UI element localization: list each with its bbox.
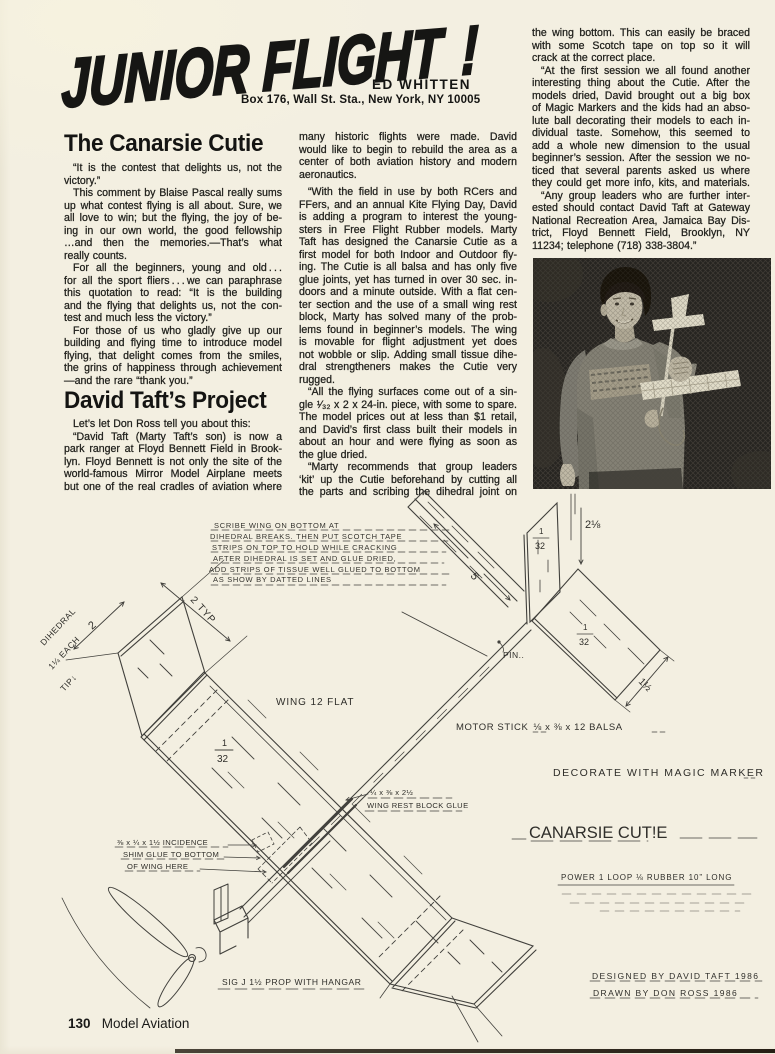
svg-text:AS SHOW BY DATTED LINES: AS SHOW BY DATTED LINES xyxy=(213,575,332,584)
svg-text:2⅛: 2⅛ xyxy=(585,519,601,531)
svg-text:1: 1 xyxy=(583,623,588,632)
svg-text:DESIGNED BY DAVID TAFT 198: DESIGNED BY DAVID TAFT 1986 xyxy=(592,971,759,981)
svg-text:SHIM GLUE TO BOTTOM: SHIM GLUE TO BOTTOM xyxy=(123,850,219,859)
svg-text:DECORATE WITH MAGIC MARKER: DECORATE WITH MAGIC MARKER xyxy=(553,767,764,779)
svg-text:32: 32 xyxy=(579,637,589,647)
svg-text:OF WING HERE: OF WING HERE xyxy=(127,862,188,871)
svg-text:MOTOR STICK ⅛ x ⅜ x 12 BALSA: MOTOR STICK ⅛ x ⅜ x 12 BALSA xyxy=(456,722,623,733)
svg-text:WING 12 FLAT: WING 12 FLAT xyxy=(276,697,354,708)
svg-text:SCRIBE WING ON BOTTOM AT: SCRIBE WING ON BOTTOM AT xyxy=(214,521,339,530)
svg-text:CANARSIE CUT!E: CANARSIE CUT!E xyxy=(529,824,667,842)
svg-text:PIN..: PIN.. xyxy=(503,650,524,660)
svg-text:POWER 1 LOOP ⅛ RUBBER 10: POWER 1 LOOP ⅛ RUBBER 10” LONG xyxy=(561,873,732,882)
svg-text:1: 1 xyxy=(222,738,227,748)
svg-text:TIP↓: TIP↓ xyxy=(58,672,79,693)
svg-text:5: 5 xyxy=(468,570,481,582)
svg-text:SIG J 1½ PROP WITH HANGAR: SIG J 1½ PROP WITH HANGAR xyxy=(222,977,362,987)
svg-text:32: 32 xyxy=(217,754,229,765)
svg-text:¼ x ⅜ x 2½: ¼ x ⅜ x 2½ xyxy=(370,788,414,797)
svg-text:ADD STRIPS OF TISSUE WELL G: ADD STRIPS OF TISSUE WELL GLUED TO BOTTO… xyxy=(209,565,421,574)
svg-text:WING REST BLOCK GLUE: WING REST BLOCK GLUE xyxy=(367,801,469,810)
svg-text:2 TYP: 2 TYP xyxy=(188,595,218,627)
svg-text:2: 2 xyxy=(86,619,98,632)
svg-text:⅜ x ¼ x 1½ INCIDENCE: ⅜ x ¼ x 1½ INCIDENCE xyxy=(117,838,208,847)
svg-text:DRAWN BY DON ROSS 1986: DRAWN BY DON ROSS 1986 xyxy=(593,988,738,998)
svg-text:32: 32 xyxy=(535,541,545,551)
svg-text:DIHEDRAL BREAKS. THEN PUT S: DIHEDRAL BREAKS. THEN PUT SCOTCH TAPE xyxy=(210,532,402,541)
svg-text:1: 1 xyxy=(539,527,544,536)
svg-text:AFTER DIHEDRAL IS SET AND: AFTER DIHEDRAL IS SET AND GLUE DRIED, xyxy=(213,554,396,563)
svg-text:STRIPS ON TOP TO HOLD WHILE: STRIPS ON TOP TO HOLD WHILE CRACKING xyxy=(212,543,397,552)
